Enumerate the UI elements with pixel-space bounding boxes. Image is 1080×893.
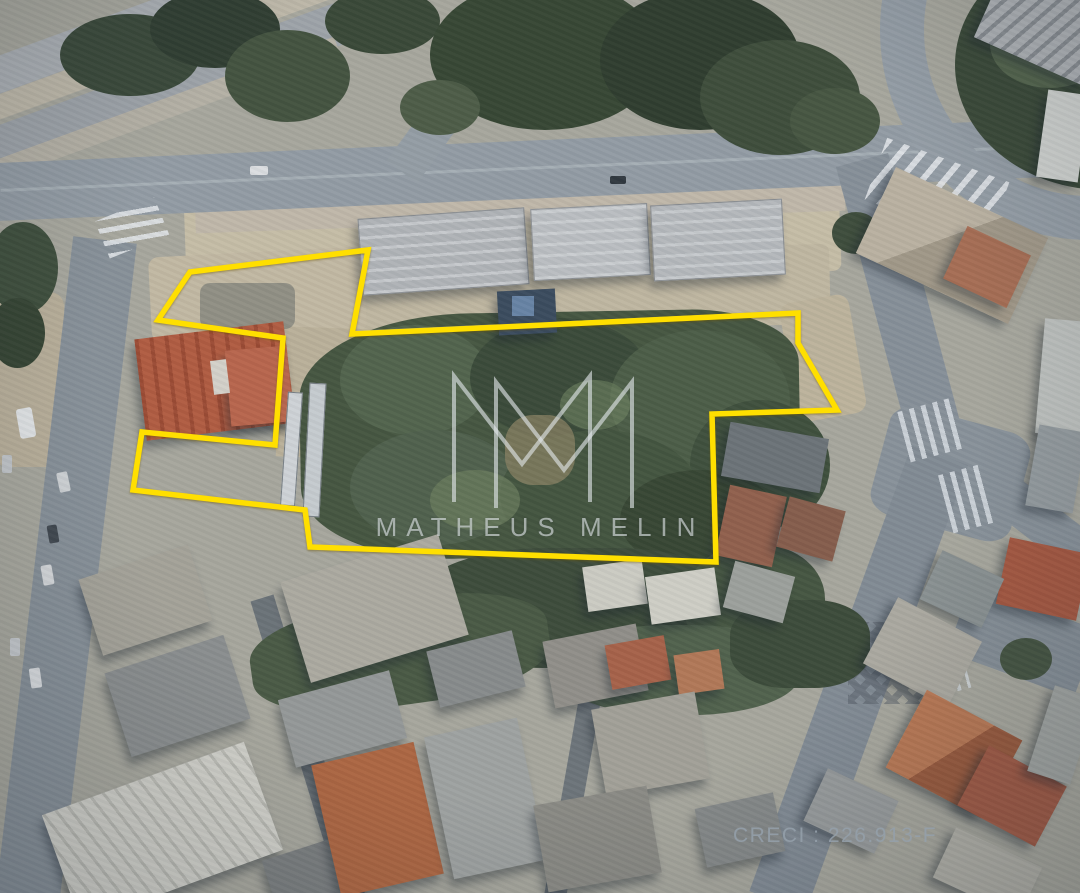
boundary-polygon — [133, 250, 837, 562]
property-boundary-overlay — [0, 0, 1080, 893]
license-text: CRECI : 226.913-F — [733, 824, 937, 848]
aerial-photo: MATHEUS MELIN CRECI : 226.913-F — [0, 0, 1080, 893]
